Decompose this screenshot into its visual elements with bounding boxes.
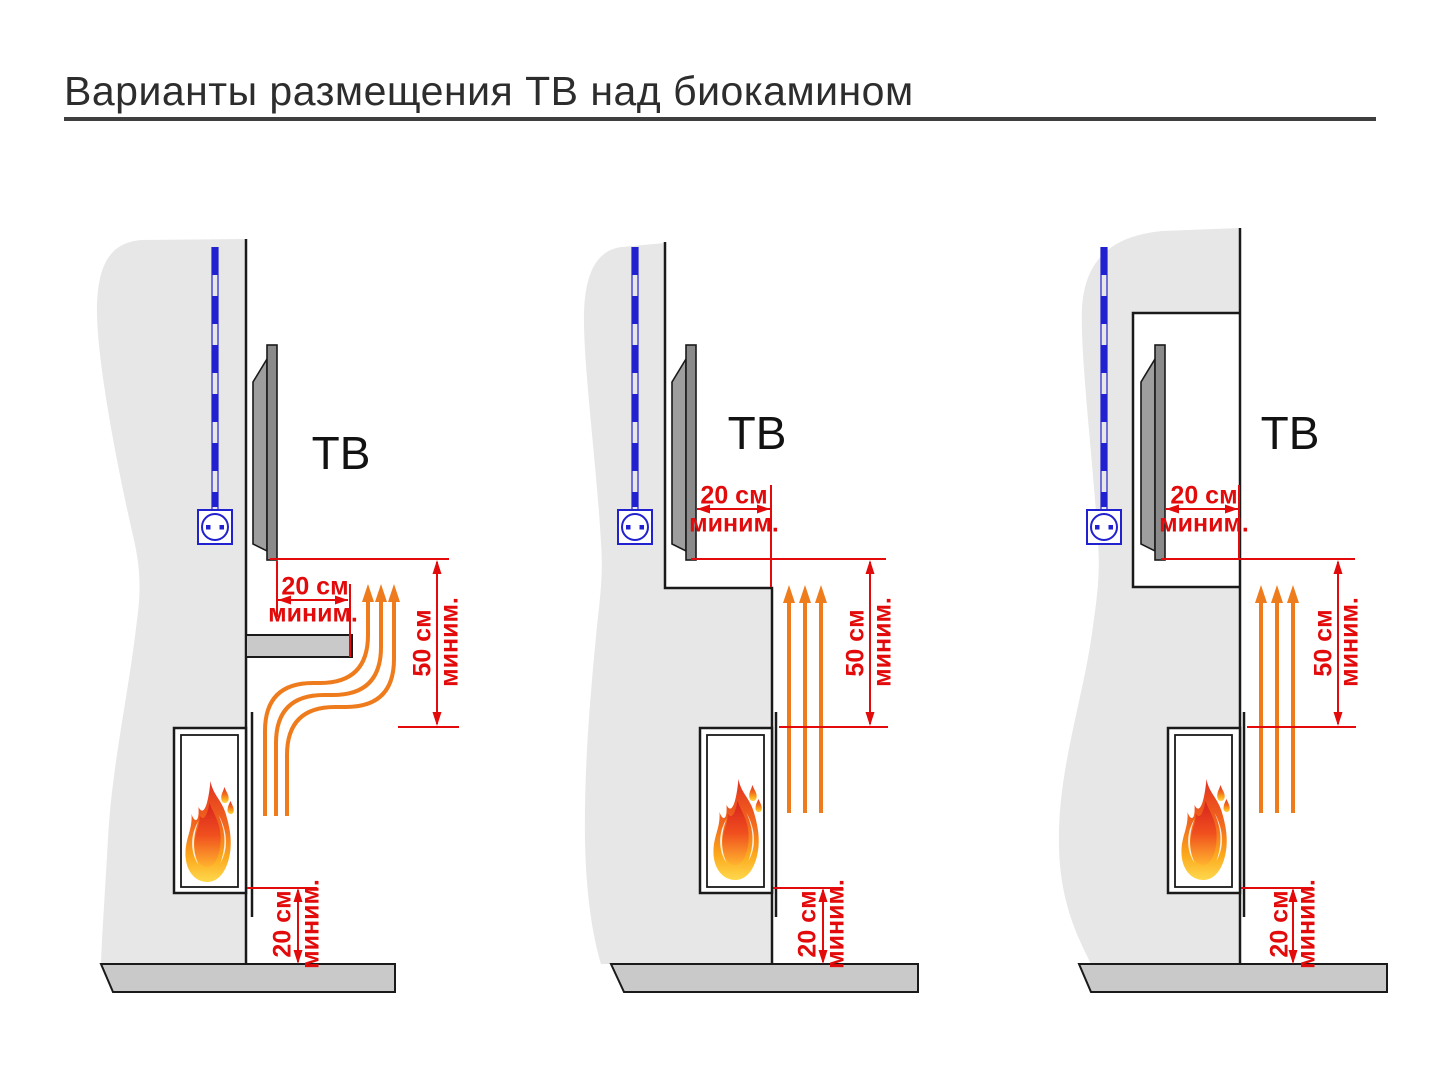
tv-side-view [253,345,277,560]
tv-label: ТВ [1261,410,1320,456]
top-gap-min: миним. [871,597,896,687]
floor-gap-value: 20 см [271,890,296,957]
top-gap-min: миним. [1338,597,1363,687]
floor-slab [1079,964,1387,992]
protective-shelf [246,635,352,657]
infographic-canvas: Варианты размещения ТВ над биокамином [0,0,1440,1080]
front-gap-value: 20 см [1170,484,1237,509]
floor-slab [101,964,395,992]
power-socket-icon [1087,510,1121,544]
heat-flow-arrows [1255,585,1299,813]
floor-gap-min: миним. [299,879,324,969]
front-gap-value: 20 см [700,484,767,509]
floor-gap-value: 20 см [1268,890,1293,957]
top-gap-min: миним. [438,597,463,687]
top-gap-value: 50 см [1312,609,1337,676]
heat-flow-arrows [783,585,827,813]
floor-gap-min: миним. [1295,879,1320,969]
top-gap-value: 50 см [411,609,436,676]
front-gap-min: миним. [689,512,779,537]
floor-slab [611,964,918,992]
floor-gap-value: 20 см [796,890,821,957]
front-gap-value: 20 см [281,575,348,600]
tv-label: ТВ [312,430,371,476]
tv-label: ТВ [728,410,787,456]
front-gap-min: миним. [1159,512,1249,537]
front-gap-min: миним. [268,602,358,627]
power-socket-icon [618,510,652,544]
power-socket-icon [198,510,232,544]
floor-gap-min: миним. [824,879,849,969]
top-gap-value: 50 см [844,609,869,676]
diagram-artwork [0,0,1440,1080]
